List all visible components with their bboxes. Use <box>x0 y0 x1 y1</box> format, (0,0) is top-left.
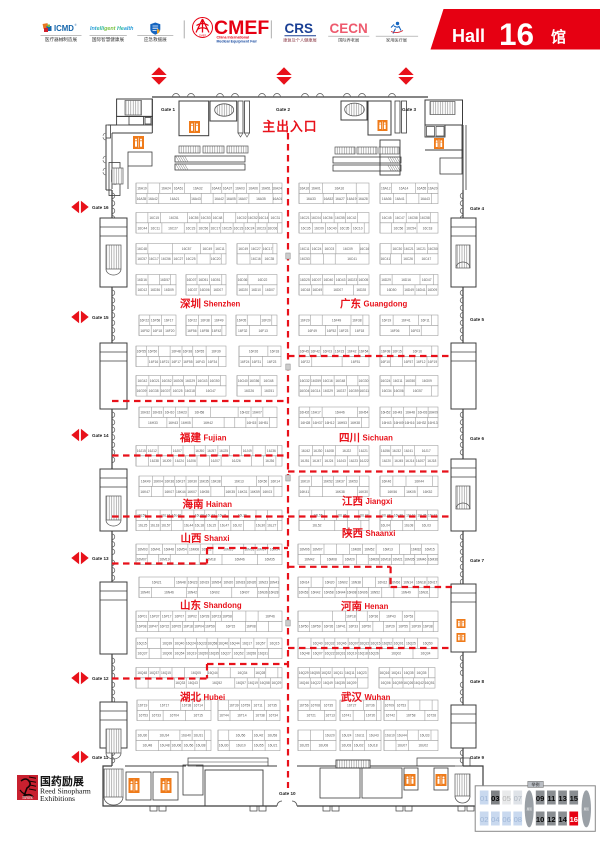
svg-text:湖北: 湖北 <box>180 691 201 704</box>
svg-text:Shandong: Shandong <box>204 601 242 610</box>
svg-text:16D07: 16D07 <box>312 278 322 282</box>
svg-text:16K14: 16K14 <box>271 479 281 483</box>
svg-text:15: 15 <box>570 794 579 803</box>
svg-text:16F42: 16F42 <box>212 329 222 333</box>
svg-text:16G09: 16G09 <box>422 379 432 383</box>
svg-text:16A35: 16A35 <box>137 197 147 201</box>
svg-text:16F23: 16F23 <box>335 349 345 353</box>
svg-text:16Q22: 16Q22 <box>359 641 369 645</box>
svg-text:16M06: 16M06 <box>299 547 309 551</box>
svg-text:16K35: 16K35 <box>199 479 209 483</box>
svg-text:16Q51: 16Q51 <box>425 681 435 685</box>
svg-text:16H28: 16H28 <box>301 421 311 425</box>
svg-text:16H32: 16H32 <box>240 410 250 414</box>
svg-text:16C20: 16C20 <box>211 257 221 261</box>
svg-text:16M42: 16M42 <box>304 558 314 562</box>
svg-text:16F38: 16F38 <box>183 349 193 353</box>
svg-text:16J22: 16J22 <box>360 459 369 463</box>
svg-text:16C50: 16C50 <box>428 247 438 251</box>
svg-text:16P07: 16P07 <box>175 614 185 618</box>
svg-text:16T35: 16T35 <box>324 703 334 707</box>
svg-text:16Q15: 16Q15 <box>137 641 147 645</box>
svg-text:Jiangxi: Jiangxi <box>366 497 393 506</box>
svg-text:16C27: 16C27 <box>168 226 178 230</box>
svg-text:16K53: 16K53 <box>348 479 358 483</box>
svg-text:16Q07: 16Q07 <box>349 641 359 645</box>
svg-text:16Q46: 16Q46 <box>299 681 309 685</box>
svg-text:16P18: 16P18 <box>183 625 193 629</box>
svg-text:16F32: 16F32 <box>238 329 248 333</box>
svg-text:16D12: 16D12 <box>137 288 147 292</box>
svg-text:16F17: 16F17 <box>164 318 174 322</box>
svg-text:16J07: 16J07 <box>211 459 220 463</box>
svg-text:16L27: 16L27 <box>267 524 276 528</box>
svg-text:16F48: 16F48 <box>171 349 181 353</box>
svg-text:16J56: 16J56 <box>381 449 390 453</box>
svg-text:16Q31: 16Q31 <box>335 652 345 656</box>
svg-text:16U10: 16U10 <box>236 744 246 748</box>
svg-text:16N06: 16N06 <box>358 591 368 595</box>
svg-text:Intelligent Health: Intelligent Health <box>90 26 134 32</box>
svg-text:16G52: 16G52 <box>162 379 172 383</box>
svg-text:16C47: 16C47 <box>421 257 431 261</box>
svg-text:16G57: 16G57 <box>413 389 423 393</box>
svg-text:16C35: 16C35 <box>265 257 275 261</box>
svg-text:16F20: 16F20 <box>165 329 175 333</box>
svg-text:展馆: 展馆 <box>584 807 590 811</box>
svg-text:16F16: 16F16 <box>149 360 159 364</box>
svg-text:16C24: 16C24 <box>245 226 255 230</box>
svg-text:16C21: 16C21 <box>300 216 310 220</box>
svg-text:16K59: 16K59 <box>250 490 260 494</box>
svg-text:16P18: 16P18 <box>346 614 356 618</box>
svg-text:16N20: 16N20 <box>223 580 233 584</box>
svg-text:16N53: 16N53 <box>299 591 309 595</box>
svg-text:16J47: 16J47 <box>312 459 321 463</box>
svg-text:16D43: 16D43 <box>336 278 346 282</box>
svg-text:16Q58: 16Q58 <box>207 641 217 645</box>
svg-text:16N20: 16N20 <box>247 580 257 584</box>
svg-text:16C25: 16C25 <box>186 257 196 261</box>
svg-text:11: 11 <box>547 794 556 803</box>
svg-text:16C48: 16C48 <box>137 247 147 251</box>
svg-text:16C09: 16C09 <box>343 247 353 251</box>
svg-text:16U02: 16U02 <box>354 744 364 748</box>
svg-text:16T15: 16T15 <box>194 714 204 718</box>
svg-text:16C11: 16C11 <box>215 247 225 251</box>
svg-text:16H32: 16H32 <box>140 410 150 414</box>
svg-text:16H38: 16H38 <box>350 421 360 425</box>
svg-text:四川: 四川 <box>339 432 360 444</box>
svg-text:16: 16 <box>499 16 534 52</box>
svg-text:16Q46: 16Q46 <box>337 641 347 645</box>
svg-text:16A05: 16A05 <box>226 197 236 201</box>
svg-text:16N42: 16N42 <box>311 591 321 595</box>
svg-text:16K37: 16K37 <box>335 479 345 483</box>
svg-text:16C55: 16C55 <box>335 216 345 220</box>
svg-text:16Q50: 16Q50 <box>423 641 433 645</box>
svg-text:16Q57: 16Q57 <box>236 681 246 685</box>
svg-text:16Q17: 16Q17 <box>242 641 252 645</box>
svg-text:16U21: 16U21 <box>268 744 278 748</box>
svg-text:16P05: 16P05 <box>172 625 182 629</box>
svg-text:16C58: 16C58 <box>420 216 430 220</box>
svg-text:16A16: 16A16 <box>300 187 310 191</box>
svg-text:16C04: 16C04 <box>311 216 321 220</box>
svg-text:广东: 广东 <box>340 297 361 310</box>
svg-text:16C23: 16C23 <box>186 226 196 230</box>
svg-text:16Q28: 16Q28 <box>255 671 265 675</box>
svg-text:16U38: 16U38 <box>196 744 206 748</box>
svg-text:16C56: 16C56 <box>161 257 171 261</box>
svg-text:16G21: 16G21 <box>150 379 160 383</box>
svg-text:16L30: 16L30 <box>256 524 265 528</box>
svg-text:16J36: 16J36 <box>267 449 276 453</box>
svg-text:16C21: 16C21 <box>404 247 414 251</box>
svg-text:16M52: 16M52 <box>364 547 374 551</box>
svg-text:16U34: 16U34 <box>159 733 169 737</box>
svg-text:16C57: 16C57 <box>182 247 192 251</box>
svg-text:16A14: 16A14 <box>399 187 409 191</box>
svg-text:16P43: 16P43 <box>386 614 396 618</box>
svg-text:16H43: 16H43 <box>382 421 392 425</box>
svg-text:16D18: 16D18 <box>301 288 311 292</box>
svg-text:Shanxi: Shanxi <box>204 534 230 543</box>
svg-text:16N33: 16N33 <box>235 580 245 584</box>
svg-text:16G38: 16G38 <box>149 389 159 393</box>
svg-text:16A16: 16A16 <box>335 187 345 191</box>
svg-text:16A55: 16A55 <box>417 187 427 191</box>
svg-text:16Q01: 16Q01 <box>394 641 404 645</box>
svg-text:16J41: 16J41 <box>404 449 413 453</box>
svg-text:16L03: 16L03 <box>422 524 431 528</box>
svg-text:16Q39: 16Q39 <box>162 641 172 645</box>
svg-text:16A43: 16A43 <box>420 197 430 201</box>
svg-text:16C53: 16C53 <box>300 257 310 261</box>
svg-text:16M08: 16M08 <box>189 547 199 551</box>
svg-text:16T53: 16T53 <box>139 714 149 718</box>
svg-text:16K13: 16K13 <box>234 479 244 483</box>
svg-text:16Q29: 16Q29 <box>299 671 309 675</box>
svg-text:16F17: 16F17 <box>172 360 182 364</box>
svg-text:16A01: 16A01 <box>273 197 283 201</box>
svg-text:Gate 6: Gate 6 <box>470 436 484 441</box>
svg-text:16Q33: 16Q33 <box>175 681 185 685</box>
svg-text:16Q19: 16Q19 <box>187 652 197 656</box>
svg-text:16A24: 16A24 <box>161 187 171 191</box>
svg-text:16A27: 16A27 <box>335 197 345 201</box>
svg-text:16K04: 16K04 <box>153 479 163 483</box>
svg-text:16Q24: 16Q24 <box>186 641 196 645</box>
svg-text:Medical Equipment Fair: Medical Equipment Fair <box>217 39 258 43</box>
svg-text:16F50: 16F50 <box>148 349 158 353</box>
svg-text:16T35: 16T35 <box>268 703 278 707</box>
svg-text:16F22: 16F22 <box>140 318 150 322</box>
svg-text:16M20: 16M20 <box>345 558 355 562</box>
svg-text:家用医疗展: 家用医疗展 <box>386 36 408 43</box>
svg-text:16K03: 16K03 <box>263 490 273 494</box>
svg-text:16N12: 16N12 <box>378 580 388 584</box>
svg-text:CMEF: CMEF <box>199 34 207 38</box>
svg-text:16K46: 16K46 <box>382 479 392 483</box>
svg-text:16F18: 16F18 <box>355 329 365 333</box>
svg-text:16U56: 16U56 <box>236 733 246 737</box>
svg-text:主出入口: 主出入口 <box>262 119 317 134</box>
svg-text:16Q23: 16Q23 <box>197 641 207 645</box>
svg-text:16D36: 16D36 <box>238 278 248 282</box>
svg-text:16D10: 16D10 <box>251 288 261 292</box>
svg-text:Gate 9: Gate 9 <box>470 755 484 760</box>
svg-text:16K50: 16K50 <box>258 479 268 483</box>
svg-text:16D49: 16D49 <box>404 288 414 292</box>
svg-text:16J25: 16J25 <box>219 449 228 453</box>
svg-text:国际智慧健康展: 国际智慧健康展 <box>92 36 125 43</box>
svg-text:16A12: 16A12 <box>381 187 391 191</box>
svg-text:16T08: 16T08 <box>311 703 321 707</box>
svg-text:16Q48: 16Q48 <box>137 671 147 675</box>
svg-text:16K44: 16K44 <box>414 479 424 483</box>
svg-text:16T19: 16T19 <box>138 703 148 707</box>
svg-text:16J57: 16J57 <box>207 449 216 453</box>
svg-text:16A03: 16A03 <box>235 187 245 191</box>
svg-text:16P41: 16P41 <box>336 625 346 629</box>
svg-text:16H42: 16H42 <box>203 421 213 425</box>
svg-text:16Q05: 16Q05 <box>191 671 201 675</box>
svg-text:16M35: 16M35 <box>265 558 275 562</box>
svg-text:16J51: 16J51 <box>300 459 309 463</box>
svg-text:16A19: 16A19 <box>347 197 357 201</box>
svg-text:16M15: 16M15 <box>425 547 435 551</box>
svg-text:16G14: 16G14 <box>311 389 321 393</box>
svg-text:Gate 15: Gate 15 <box>92 315 109 320</box>
svg-text:16Q15: 16Q15 <box>270 641 280 645</box>
svg-text:10: 10 <box>536 815 544 824</box>
svg-text:16F55: 16F55 <box>183 360 193 364</box>
svg-text:16D09: 16D09 <box>164 288 174 292</box>
svg-text:16J22: 16J22 <box>342 449 351 453</box>
svg-text:16C57: 16C57 <box>137 257 147 261</box>
svg-text:山东: 山东 <box>180 599 201 612</box>
svg-text:16Q58: 16Q58 <box>260 681 270 685</box>
svg-text:16C40: 16C40 <box>327 226 337 230</box>
svg-text:16C49: 16C49 <box>238 247 248 251</box>
svg-text:16Q34: 16Q34 <box>421 652 431 656</box>
svg-text:16M32: 16M32 <box>411 547 421 551</box>
svg-text:16D40: 16D40 <box>324 278 334 282</box>
svg-text:16F03: 16F03 <box>323 349 333 353</box>
svg-text:16G24: 16G24 <box>381 379 391 383</box>
svg-text:16U58: 16U58 <box>267 733 277 737</box>
svg-text:CRS: CRS <box>285 21 314 36</box>
svg-text:16F12: 16F12 <box>416 360 426 364</box>
svg-text:16Q23: 16Q23 <box>357 671 367 675</box>
svg-text:16Q50: 16Q50 <box>198 652 208 656</box>
svg-text:16D07: 16D07 <box>265 288 275 292</box>
svg-text:16J20: 16J20 <box>382 459 391 463</box>
svg-text:16T13: 16T13 <box>326 714 336 718</box>
svg-text:应急救援展: 应急救援展 <box>144 36 167 43</box>
svg-text:16C48: 16C48 <box>213 216 223 220</box>
svg-text:16J30: 16J30 <box>313 449 322 453</box>
svg-text:16F29: 16F29 <box>300 318 310 322</box>
svg-text:16D25: 16D25 <box>300 278 310 282</box>
svg-text:16D07: 16D07 <box>333 288 343 292</box>
svg-text:16U30: 16U30 <box>219 744 229 748</box>
svg-text:16C44: 16C44 <box>137 226 147 230</box>
svg-text:16T09: 16T09 <box>385 703 395 707</box>
svg-text:16Q07: 16Q07 <box>313 652 323 656</box>
svg-text:16A52: 16A52 <box>324 197 334 201</box>
svg-text:16F18: 16F18 <box>153 329 163 333</box>
svg-text:16H05: 16H05 <box>181 421 191 425</box>
svg-text:16J36: 16J36 <box>265 459 274 463</box>
svg-text:16L04: 16L04 <box>381 524 390 528</box>
svg-text:16P23: 16P23 <box>212 614 222 618</box>
svg-text:16H51: 16H51 <box>259 421 269 425</box>
svg-text:Gate 1: Gate 1 <box>161 107 175 112</box>
svg-text:16G11: 16G11 <box>359 389 369 393</box>
svg-text:16P02: 16P02 <box>187 614 197 618</box>
svg-text:16H52: 16H52 <box>381 410 391 414</box>
svg-text:16D16: 16D16 <box>137 278 147 282</box>
svg-text:16C03: 16C03 <box>324 247 334 251</box>
svg-text:02: 02 <box>480 815 488 824</box>
svg-text:16D37: 16D37 <box>188 288 198 292</box>
svg-text:16H02: 16H02 <box>300 410 310 414</box>
svg-text:16Q32: 16Q32 <box>325 641 335 645</box>
svg-text:16N49: 16N49 <box>401 591 411 595</box>
svg-text:13: 13 <box>558 794 566 803</box>
svg-text:01: 01 <box>480 794 488 803</box>
svg-text:16T33: 16T33 <box>152 714 162 718</box>
svg-text:16L02: 16L02 <box>233 524 242 528</box>
svg-text:16Q11: 16Q11 <box>345 671 355 675</box>
svg-text:16F49: 16F49 <box>332 318 342 322</box>
svg-text:Gate 16: Gate 16 <box>92 205 109 210</box>
svg-text:16C53: 16C53 <box>201 216 211 220</box>
svg-text:海南: 海南 <box>183 498 204 511</box>
svg-text:16A42: 16A42 <box>148 197 158 201</box>
svg-text:举例: 举例 <box>532 781 540 787</box>
svg-text:16T34: 16T34 <box>269 714 279 718</box>
svg-text:16F18: 16F18 <box>270 349 280 353</box>
svg-text:16N36: 16N36 <box>258 591 268 595</box>
svg-text:16D47: 16D47 <box>422 278 432 282</box>
svg-text:16K56: 16K56 <box>388 490 398 494</box>
svg-text:Shenzhen: Shenzhen <box>204 300 241 309</box>
svg-text:16Q52: 16Q52 <box>212 681 222 685</box>
svg-text:16U40: 16U40 <box>181 733 191 737</box>
svg-text:16C02: 16C02 <box>237 216 247 220</box>
svg-text:16C17: 16C17 <box>263 247 273 251</box>
svg-text:16F55: 16F55 <box>137 349 147 353</box>
svg-text:16J17: 16J17 <box>422 449 431 453</box>
svg-text:Guangdong: Guangdong <box>364 300 408 309</box>
svg-text:16C14: 16C14 <box>259 216 269 220</box>
svg-text:16H32: 16H32 <box>417 421 427 425</box>
svg-text:16N38: 16N38 <box>351 580 361 584</box>
svg-text:16F45: 16F45 <box>300 349 310 353</box>
svg-text:16Q37: 16Q37 <box>149 671 159 675</box>
svg-text:Gate 14: Gate 14 <box>92 433 109 438</box>
svg-text:16F05: 16F05 <box>237 318 247 322</box>
svg-text:16A24: 16A24 <box>272 187 282 191</box>
svg-text:16H15: 16H15 <box>247 421 257 425</box>
svg-text:16T04: 16T04 <box>170 714 180 718</box>
svg-text:16T20: 16T20 <box>366 714 376 718</box>
svg-text:16J50: 16J50 <box>195 449 204 453</box>
svg-text:16F19: 16F19 <box>382 318 392 322</box>
svg-text:16L44: 16L44 <box>184 524 193 528</box>
svg-text:16P50: 16P50 <box>362 625 372 629</box>
svg-text:16D06: 16D06 <box>200 288 210 292</box>
svg-text:16A20: 16A20 <box>428 187 438 191</box>
svg-text:16N28: 16N28 <box>269 591 279 595</box>
svg-text:16U42: 16U42 <box>254 733 264 737</box>
svg-text:16N02: 16N02 <box>338 580 348 584</box>
svg-text:16D51: 16D51 <box>211 278 221 282</box>
svg-text:16D16: 16D16 <box>401 278 411 282</box>
svg-text:16Q19: 16Q19 <box>248 681 258 685</box>
svg-text:16P15: 16P15 <box>226 625 236 629</box>
svg-text:16Q52: 16Q52 <box>234 652 244 656</box>
svg-text:16N52: 16N52 <box>370 591 380 595</box>
svg-text:16U31: 16U31 <box>193 733 203 737</box>
svg-text:16H43: 16H43 <box>168 421 178 425</box>
svg-text:16Q19: 16Q19 <box>347 652 357 656</box>
svg-text:16C17: 16C17 <box>210 226 220 230</box>
svg-text:16F42: 16F42 <box>311 349 321 353</box>
svg-text:16U25: 16U25 <box>299 744 309 748</box>
svg-text:16G32: 16G32 <box>300 379 310 383</box>
svg-text:16U44: 16U44 <box>397 733 407 737</box>
svg-text:16Q26: 16Q26 <box>369 652 379 656</box>
svg-text:16G29: 16G29 <box>323 389 333 393</box>
svg-text:16C35: 16C35 <box>340 226 350 230</box>
svg-text:16M18: 16M18 <box>381 558 391 562</box>
svg-text:16Q57: 16Q57 <box>256 641 266 645</box>
svg-text:16Q29: 16Q29 <box>271 681 281 685</box>
svg-text:16N21: 16N21 <box>152 580 162 584</box>
svg-text:16N54: 16N54 <box>211 580 221 584</box>
svg-text:16U56: 16U56 <box>184 744 194 748</box>
svg-text:16F11: 16F11 <box>421 318 430 322</box>
svg-text:16M54: 16M54 <box>177 547 187 551</box>
svg-text:16F39: 16F39 <box>211 349 221 353</box>
svg-text:Sichuan: Sichuan <box>363 434 394 443</box>
svg-text:16J26: 16J26 <box>232 459 241 463</box>
svg-text:16N41: 16N41 <box>269 580 279 584</box>
svg-text:Gate 10: Gate 10 <box>279 791 296 796</box>
svg-text:16H46: 16H46 <box>335 410 345 414</box>
svg-text:Gate 5: Gate 5 <box>470 317 484 322</box>
svg-text:16G25: 16G25 <box>173 389 183 393</box>
svg-text:16F19: 16F19 <box>428 360 438 364</box>
svg-text:16H10: 16H10 <box>165 410 175 414</box>
svg-text:Gate 11: Gate 11 <box>92 755 109 760</box>
svg-text:16Q06: 16Q06 <box>381 681 391 685</box>
svg-text:16G30: 16G30 <box>359 379 369 383</box>
svg-text:16F52: 16F52 <box>327 329 337 333</box>
svg-text:Gate 4: Gate 4 <box>470 206 484 211</box>
svg-text:16K55: 16K55 <box>200 490 210 494</box>
svg-text:16H13: 16H13 <box>428 421 438 425</box>
svg-text:16T21: 16T21 <box>307 714 317 718</box>
svg-text:16K52: 16K52 <box>423 490 433 494</box>
svg-text:16C55: 16C55 <box>189 216 199 220</box>
svg-text:16T27: 16T27 <box>347 703 357 707</box>
svg-text:16J23: 16J23 <box>349 459 358 463</box>
